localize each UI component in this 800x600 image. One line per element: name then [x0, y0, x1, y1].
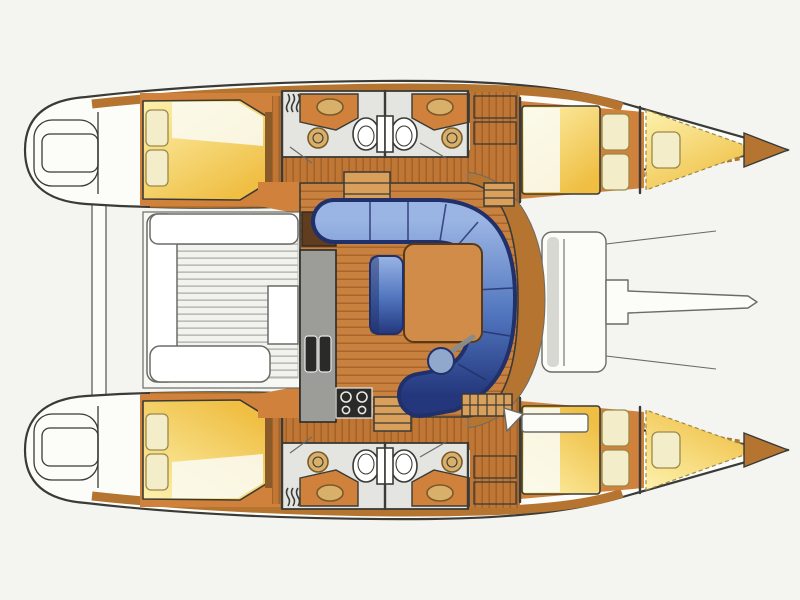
catamaran-floorplan — [0, 0, 800, 600]
toilet — [391, 118, 417, 150]
bed-footboard — [265, 112, 272, 188]
pillow — [146, 150, 168, 186]
crossbeam-shading — [547, 237, 559, 367]
cockpit-table — [268, 286, 298, 344]
cockpit-bench-port — [150, 214, 298, 244]
washbasin — [427, 99, 453, 115]
galley-sink — [319, 336, 331, 372]
cockpit-bench-starboard — [150, 346, 270, 382]
wardrobe — [470, 92, 520, 150]
galley-stove — [336, 388, 372, 418]
forward-cabin — [520, 101, 644, 199]
cockpit — [143, 182, 300, 418]
shower-tray — [308, 128, 328, 148]
pillow — [602, 154, 629, 190]
salon-armchair — [370, 256, 403, 334]
salon-table — [404, 244, 482, 342]
catamaran-floorplan-image — [0, 0, 800, 600]
deck-hatch — [522, 414, 588, 432]
pillow — [146, 110, 168, 146]
pillow — [602, 114, 629, 150]
louvered-locker-forward-port — [484, 183, 514, 206]
toilet — [353, 118, 379, 150]
galley-counter — [300, 250, 336, 422]
forepeak-cushion — [652, 132, 680, 168]
galley-sink — [305, 336, 317, 372]
washbasin — [317, 99, 343, 115]
shower-tray — [442, 128, 462, 148]
bathrooms — [282, 91, 470, 157]
